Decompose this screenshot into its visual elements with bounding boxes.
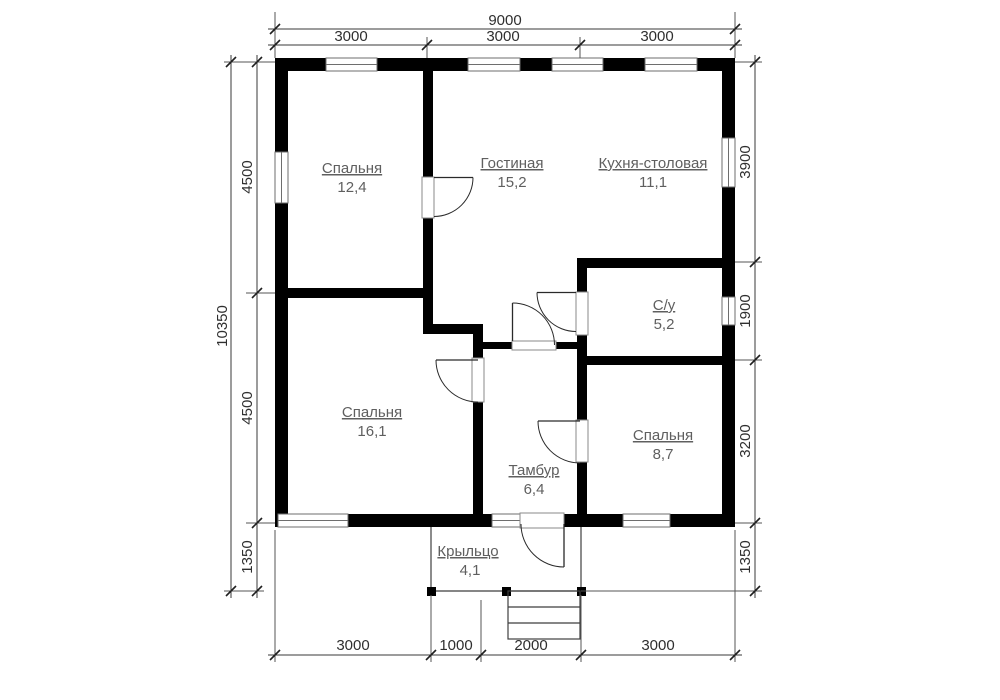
room-area: 12,4 — [337, 179, 366, 196]
door-swing-arc — [513, 303, 555, 345]
room-area: 11,1 — [639, 174, 667, 191]
floor-plan-page: Спальня 12,4 Гостиная 15,2 Кухня-столова… — [0, 0, 1000, 700]
room-label-kitchen: Кухня-столовая 11,1 — [599, 155, 708, 191]
window-symbol — [278, 514, 348, 527]
room-label-vestibule: Тамбур 6,4 — [509, 462, 560, 498]
dimension-label: 4500 — [239, 391, 256, 424]
window-symbol — [645, 58, 697, 71]
door-opening — [576, 292, 588, 335]
door-symbol — [520, 513, 564, 567]
room-label-living-room: Гостиная 15,2 — [481, 155, 544, 191]
room-name: Спальня — [633, 427, 693, 444]
wall-segment — [275, 288, 433, 298]
window-symbol — [722, 297, 735, 325]
dimension-label: 3000 — [640, 28, 673, 45]
door-swing-arc — [537, 293, 576, 332]
door-opening — [512, 341, 556, 350]
dimension-label: 3000 — [486, 28, 519, 45]
dimension-label: 3200 — [737, 424, 754, 457]
room-name: Спальня — [322, 160, 382, 177]
room-name: Гостиная — [481, 155, 544, 172]
door-symbol — [537, 292, 588, 335]
dimension-label: 10350 — [214, 305, 231, 347]
window-symbol — [623, 514, 670, 527]
dimension-label: 3000 — [334, 28, 367, 45]
door-opening — [576, 420, 588, 462]
dimension-label: 1900 — [737, 294, 754, 327]
dimension-label: 1350 — [737, 540, 754, 573]
room-area: 4,1 — [460, 562, 481, 579]
window-symbol — [492, 514, 520, 527]
room-area: 5,2 — [654, 316, 675, 333]
room-name: Спальня — [342, 404, 402, 421]
window-symbol — [326, 58, 377, 71]
door-swing-arc — [434, 178, 473, 217]
dimension-label: 1000 — [439, 637, 472, 654]
room-area: 15,2 — [497, 174, 526, 191]
room-area: 16,1 — [357, 423, 386, 440]
door-opening — [472, 358, 484, 402]
door-swing-arc — [521, 524, 564, 567]
window-symbol — [275, 152, 288, 203]
wall-segment — [577, 258, 722, 268]
room-name: Кухня-столовая — [599, 155, 708, 172]
dimension-label: 2000 — [514, 637, 547, 654]
dimension-label: 9000 — [488, 12, 521, 29]
floor-plan-drawing: Спальня 12,4 Гостиная 15,2 Кухня-столова… — [0, 0, 1000, 700]
window-symbol — [468, 58, 520, 71]
room-label-bathroom: С/у 5,2 — [653, 297, 676, 333]
extension-lines — [224, 12, 762, 662]
room-label-bedroom-2: Спальня 16,1 — [342, 404, 402, 440]
door-opening — [520, 513, 564, 528]
room-name: С/у — [653, 297, 676, 314]
window-symbol — [552, 58, 603, 71]
wall-segment — [473, 324, 483, 514]
door-symbol — [512, 303, 556, 350]
room-area: 8,7 — [653, 446, 674, 463]
steps-outline — [508, 591, 580, 639]
door-symbol — [436, 358, 484, 402]
doors — [422, 177, 588, 567]
room-area: 6,4 — [524, 481, 545, 498]
dimension-label: 4500 — [239, 160, 256, 193]
room-label-porch: Крыльцо 4,1 — [437, 543, 498, 579]
room-label-bedroom-1: Спальня 12,4 — [322, 160, 382, 196]
wall-segment — [577, 356, 722, 365]
door-swing-arc — [538, 421, 580, 463]
dimension-label: 1350 — [239, 540, 256, 573]
room-label-bedroom-3: Спальня 8,7 — [633, 427, 693, 463]
wall-segment — [722, 58, 735, 527]
steps — [508, 591, 580, 639]
room-name: Тамбур — [509, 462, 560, 479]
door-symbol — [422, 177, 473, 218]
dimension-label: 3000 — [336, 637, 369, 654]
door-symbol — [538, 420, 588, 463]
dimension-label: 3900 — [737, 145, 754, 178]
window-symbol — [722, 138, 735, 187]
dimension-label: 3000 — [641, 637, 674, 654]
door-opening — [422, 177, 434, 218]
porch-post — [427, 587, 436, 596]
room-name: Крыльцо — [437, 543, 498, 560]
